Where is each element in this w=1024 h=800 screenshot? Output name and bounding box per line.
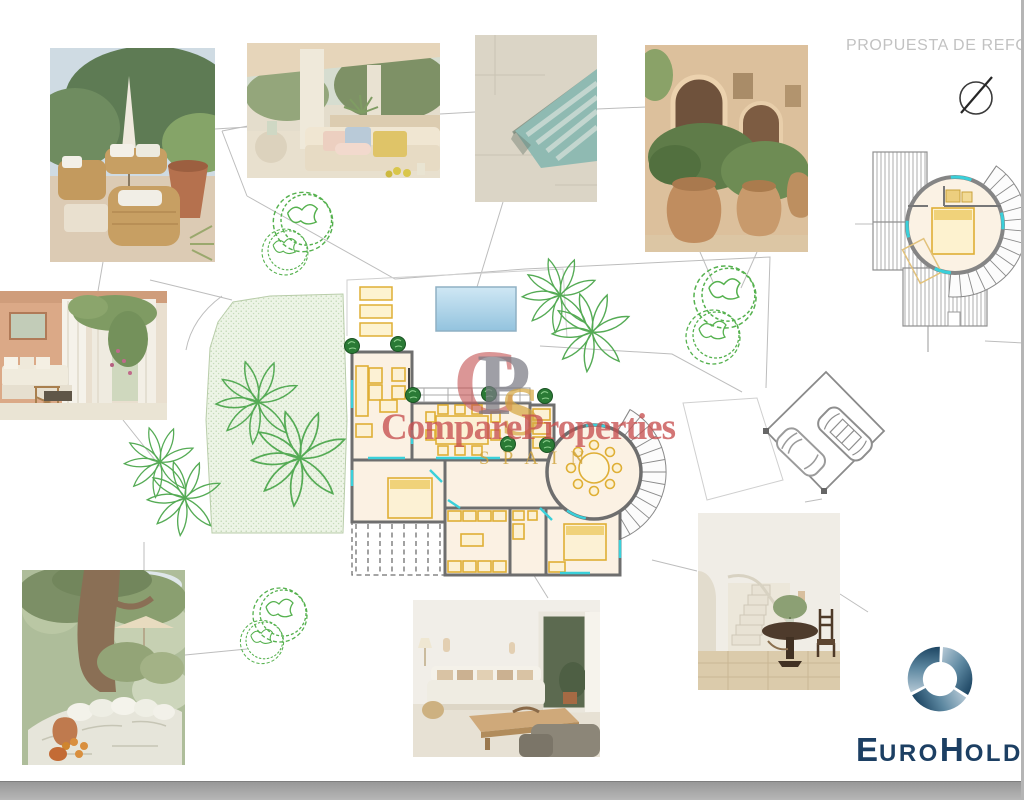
euroholding-logo-text: EUROHOLDING: [856, 731, 1024, 769]
bush-drawing: [540, 438, 555, 453]
bush-drawing: [482, 387, 497, 402]
logo-letter-e: E: [856, 731, 879, 768]
parking-plan: [683, 372, 884, 500]
photo-terracotta-pots: [645, 45, 808, 252]
north-arr ow-icon: [946, 68, 1002, 120]
canopy-tree-drawing: [240, 620, 283, 663]
bottom-bar: [0, 781, 1024, 800]
canopy-tree-drawing: [273, 192, 332, 251]
bush-drawing: [501, 437, 516, 452]
deck-railing: [412, 388, 530, 402]
canopy-tree-drawing: [686, 310, 740, 364]
photo-olive-tree-bench: [22, 570, 185, 765]
canopy-tree-drawing: [253, 588, 307, 642]
logo-uro: URO: [879, 740, 940, 767]
photo-staircase-hall: [698, 513, 840, 690]
tower-plan-detail: [873, 152, 1024, 352]
photo-porch-curtains: [0, 291, 167, 420]
main-floor-plan: [352, 352, 666, 575]
pergola-plan: [352, 522, 445, 575]
bush-drawing: [406, 388, 421, 403]
logo-olding: OLDING: [965, 740, 1024, 767]
photo-living-room: [413, 600, 600, 757]
pool-plan: [436, 287, 516, 331]
photo-covered-terrace: [247, 43, 440, 178]
lawn-area: [206, 294, 347, 533]
swirl-globe-icon: [904, 643, 976, 715]
presentation-board: C P S CompareProperties SPAIN PROPUESTA …: [0, 0, 1024, 800]
page-title: PROPUESTA DE REFORM: [846, 37, 1024, 55]
bush-drawing: [538, 389, 553, 404]
photo-pool-steps: [475, 35, 597, 202]
logo-letter-h: H: [940, 731, 965, 768]
bush-drawing: [345, 339, 360, 354]
sun-loungers-plan: [360, 287, 392, 336]
palm-tree-drawing: [124, 427, 194, 498]
photo-terrace-lounge: [50, 48, 215, 262]
pool-terrace-plan: [347, 269, 567, 338]
bush-drawing: [391, 337, 406, 352]
canopy-tree-drawing: [262, 229, 308, 275]
